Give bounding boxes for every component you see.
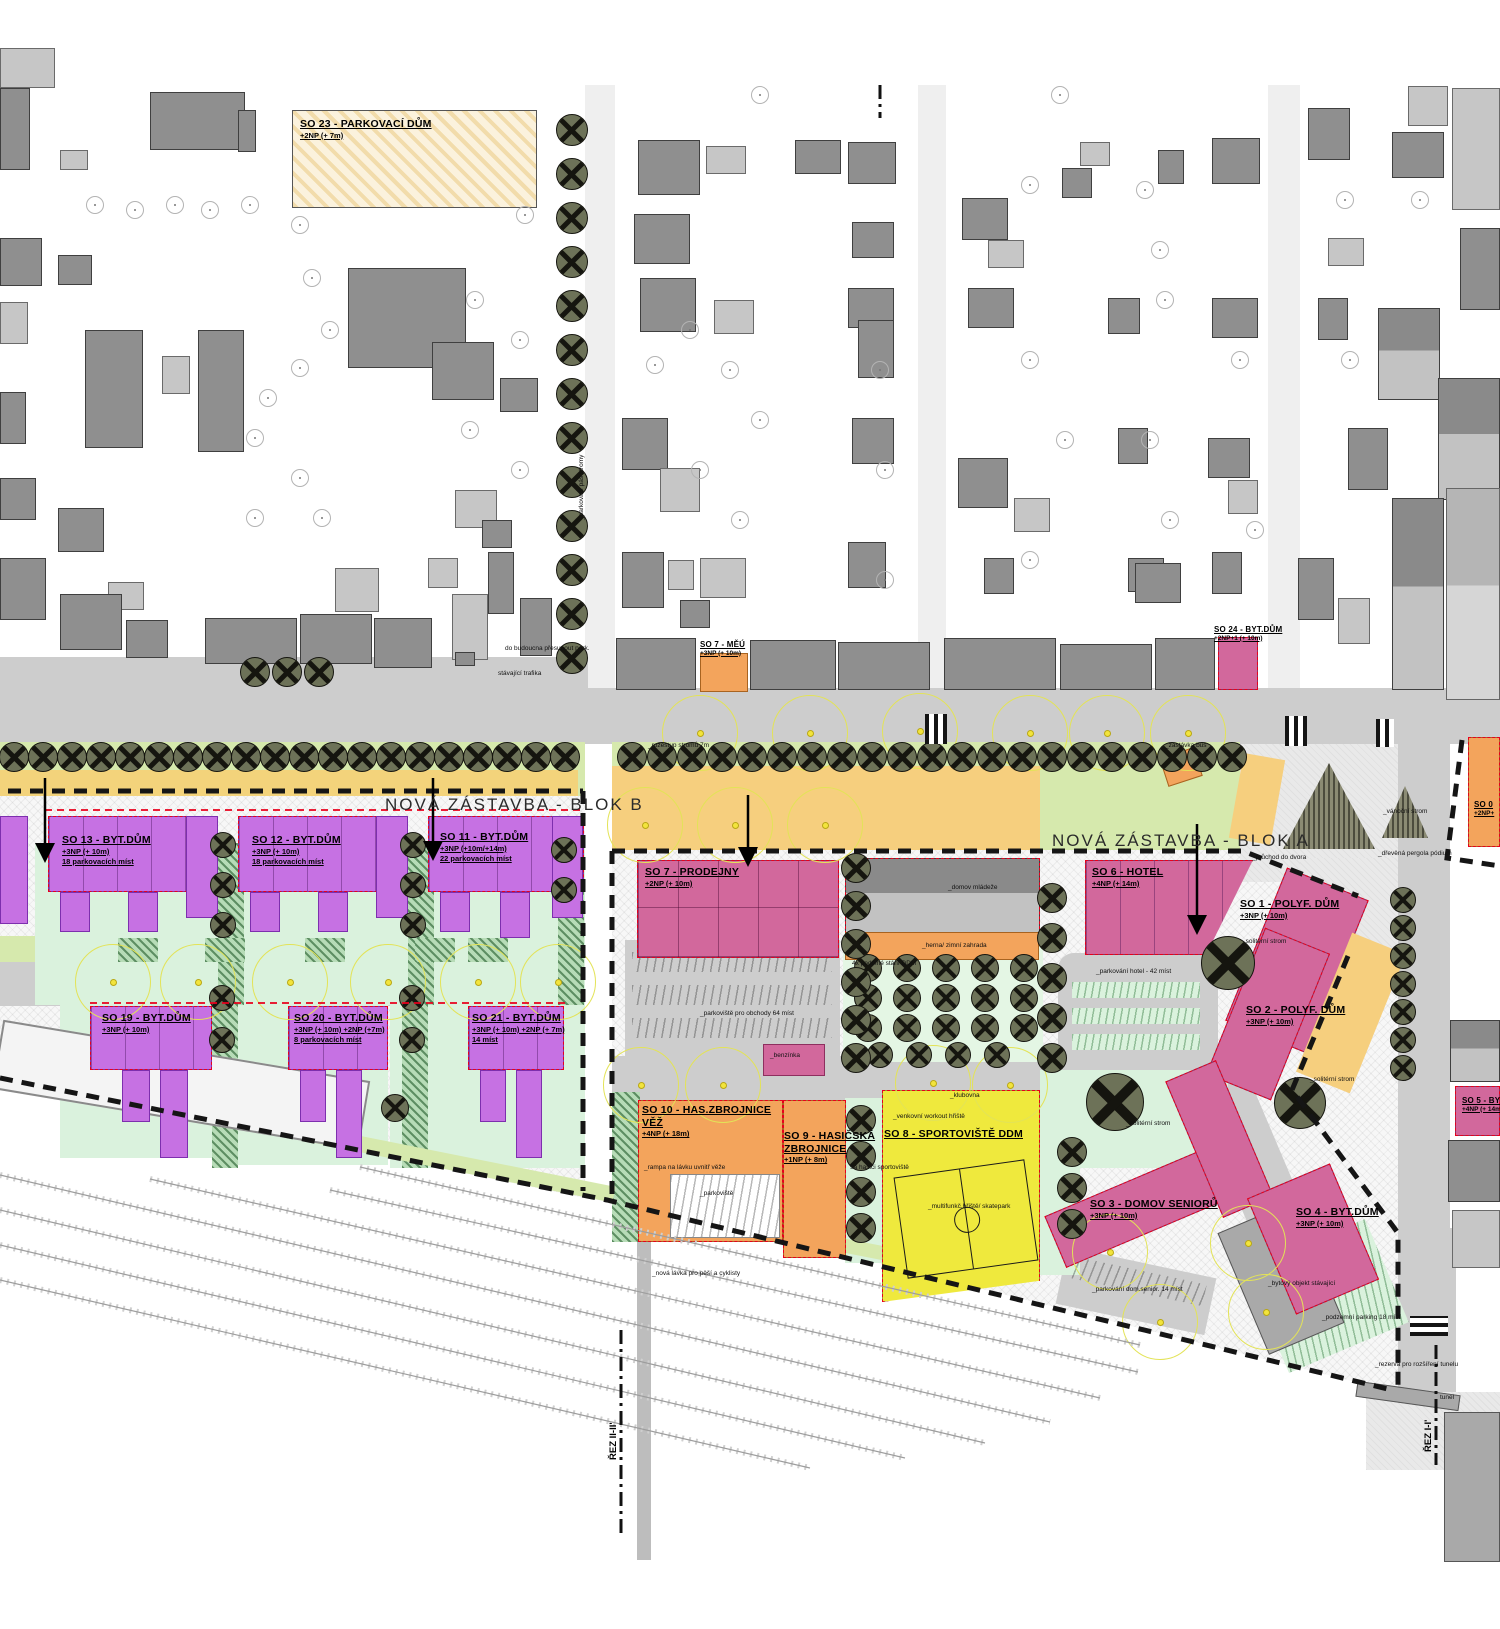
existing-building [700,558,746,598]
tree-icon [405,742,435,772]
crosswalk [925,714,947,744]
stalls-hotel-1 [1072,982,1200,998]
label-so2-title: SO 2 - POLYF. DŮM [1246,1004,1345,1017]
existing-building [958,458,1008,508]
existing-building [714,300,754,334]
stalls-obchody-3 [632,1018,832,1038]
existing-building [1212,298,1258,338]
existing-building [988,240,1024,268]
so13-wing-2 [128,892,158,932]
tree-icon [1067,742,1097,772]
existing-building [634,214,690,264]
tree-icon [381,1094,409,1122]
label-so5-title: SO 5 - BYT.DŮM [1462,1096,1500,1106]
label-so13-sub: +3NP (+ 10m) [62,847,151,857]
so10-courtyard [670,1174,780,1238]
annotation: _dřevěná pergola pódium [1378,850,1452,857]
tree-small-icon [1411,191,1429,209]
bottom-right-building [1444,1412,1500,1562]
existing-building [1460,228,1500,310]
existing-building [638,140,700,195]
block-label: NOVÁ ZÁSTAVBA - BLOK B [385,796,644,813]
existing-building [1338,598,1370,644]
tree-small-icon [466,291,484,309]
existing-building [1392,132,1444,178]
tree-icon [887,742,917,772]
tree-icon [932,954,960,982]
existing-building [1438,378,1500,500]
label-so23-sub: +2NP (+ 7m) [300,131,432,141]
existing-building [428,558,458,588]
existing-building [984,558,1014,594]
existing-building [1228,480,1258,514]
tree-icon [304,657,334,687]
main-street [0,688,1500,744]
so19-wing-1 [122,1070,150,1122]
label-so5-sub: +4NP (+ 14m) [1462,1106,1500,1115]
label-so23-title: SO 23 - PARKOVACÍ DŮM [300,118,432,131]
tree-icon [617,742,647,772]
tree-small-icon [1161,511,1179,529]
tree-small-icon [691,461,709,479]
tree-icon [971,984,999,1012]
annotation: _zastávka bus [1165,742,1207,749]
label-so21-title: SO 21 - BYT.DŮM [472,1012,565,1025]
tree-icon [1097,742,1127,772]
tree-icon [841,1005,871,1035]
so12-wing-1 [250,892,280,932]
tree-small-icon [516,206,534,224]
label-so6: SO 6 - HOTEL+4NP (+ 14m) [1092,866,1163,889]
existing-building [962,198,1008,240]
existing-building [1298,558,1334,620]
tree-icon [1057,1173,1087,1203]
existing-building [1318,298,1348,340]
so20-wing-1 [300,1070,326,1122]
tree-icon [841,853,871,883]
tree-icon [202,742,232,772]
existing-building [1408,86,1448,126]
label-so11: SO 11 - BYT.DŮM+3NP (+10m/+14m)22 parkov… [440,831,528,864]
tree-small-icon [291,469,309,487]
tree-small-icon [246,429,264,447]
existing-building [452,594,488,660]
label-so2-sub: +3NP (+ 10m) [1246,1017,1345,1027]
existing-building [668,560,694,590]
tree-icon [521,742,551,772]
benzinka [763,1044,825,1076]
existing-building [455,652,475,666]
streetlight-circle-icon [1210,1205,1286,1281]
tree-icon [1057,1137,1087,1167]
tree-icon [210,912,236,938]
tree-small-icon [1141,431,1159,449]
label-so9-title: SO 9 - HASIČSKÁ ZBROJNICE [784,1130,876,1155]
label-so20: SO 20 - BYT.DŮM+3NP (+ 10m) +2NP (+7m)8 … [294,1012,385,1045]
label-so12-title: SO 12 - BYT.DŮM [252,834,341,847]
existing-building [1108,298,1140,334]
tree-small-icon [1156,291,1174,309]
tree-icon [115,742,145,772]
tree-icon [1007,742,1037,772]
existing-building [58,508,104,552]
existing-building [1062,168,1092,198]
tree-small-icon [303,269,321,287]
tree-small-icon [1341,351,1359,369]
tree-icon [144,742,174,772]
tree-icon [1390,943,1416,969]
existing-building [622,418,668,470]
so0-building [1468,737,1500,847]
tree-small-icon [86,196,104,214]
tree-small-icon [291,216,309,234]
tree-icon [857,742,887,772]
existing-building [1448,1140,1500,1202]
tree-icon [1390,999,1416,1025]
tree-small-icon [1021,351,1039,369]
existing-building [85,330,143,448]
existing-building [1452,88,1500,210]
annotation: _benzínka [770,1052,800,1059]
label-so21: SO 21 - BYT.DŮM+3NP (+ 10m) +2NP (+ 7m)1… [472,1012,565,1045]
rail-tie-7 [0,1280,810,1468]
existing-building [238,110,256,152]
tree-icon [841,967,871,997]
label-so0-title: SO 0 [1474,800,1494,810]
tree-icon [550,742,580,772]
label-so0-sub: +2NP+ [1474,810,1494,819]
so19-wing-2 [160,1070,188,1158]
so9-hasicska-zbrojnice [783,1100,846,1258]
tree-icon [399,985,425,1011]
crosswalk [1376,719,1394,747]
tree-small-icon [246,509,264,527]
annotation: _multifunkč.hřiště/ skatepark [928,1203,1010,1210]
tree-icon [400,832,426,858]
existing-building [1208,438,1250,478]
annotation: _venkovní workout hřiště [893,1113,965,1120]
annotation: _rampa na lávku uvnitř věže [644,1164,725,1171]
existing-building [0,558,46,620]
block-label: NOVÁ ZÁSTAVBA - BLOK A [1052,832,1310,849]
tree-icon [231,742,261,772]
tree-small-icon [751,411,769,429]
tree-icon [260,742,290,772]
annotation: _parkování dom.senior. 14 míst [1092,1286,1183,1293]
tree-icon [556,554,588,586]
label-so11-sub: +3NP (+10m/+14m) [440,844,528,854]
tree-icon [1217,742,1247,772]
tree-icon [86,742,116,772]
label-so6-sub: +4NP (+ 14m) [1092,879,1163,889]
so12-wing-2 [318,892,348,932]
annotation: _parkování hotel - 42 míst [1096,968,1171,975]
tree-icon [893,1014,921,1042]
tree-small-icon [1151,241,1169,259]
tree-icon [210,832,236,858]
existing-building [616,638,696,690]
tree-small-icon [1336,191,1354,209]
tree-icon [556,598,588,630]
label-so21-sub: 14 míst [472,1035,565,1045]
annotation: _nová lávka pro pěší a cyklisty [652,1270,740,1277]
label-so3-sub: +3NP (+ 10m) [1090,1211,1218,1221]
tree-small-icon [1246,521,1264,539]
tree-small-icon [511,331,529,349]
tree-icon [400,912,426,938]
tree-small-icon [201,201,219,219]
existing-building [1060,644,1152,690]
tree-icon [1390,915,1416,941]
so11-wing-1 [440,892,470,932]
label-so12-sub: +3NP (+ 10m) [252,847,341,857]
label-so19: SO 19 - BYT.DŮM+3NP (+ 10m) [102,1012,191,1035]
tree-icon [893,954,921,982]
label-so1-title: SO 1 - POLYF. DŮM [1240,898,1339,911]
label-so1: SO 1 - POLYF. DŮM+3NP (+ 10m) [1240,898,1339,921]
tree-small-icon [291,359,309,377]
tree-icon [556,158,588,190]
existing-building [500,378,538,412]
so13-wing-3 [186,816,218,918]
tree-icon [556,114,588,146]
parking-strip-yellow [0,770,578,796]
tree-icon [971,954,999,982]
label-so4: SO 4 - BYT.DŮM+3NP (+ 10m) [1296,1206,1379,1229]
tree-icon [551,877,577,903]
annotation: _klubovna [950,1092,980,1099]
label-so10-sub: +4NP (+ 18m) [642,1129,774,1139]
existing-building [848,142,896,184]
street-vertical-3 [1268,85,1300,689]
label-so7-meu: SO 7 - MĚÚ+3NP (+ 10m) [700,640,745,658]
tree-small-icon [1051,86,1069,104]
so7-meu [700,653,748,692]
tree-icon [1037,883,1067,913]
label-so3-title: SO 3 - DOMOV SENIORŮ [1090,1198,1218,1211]
existing-building [1155,638,1215,690]
so20-wing-2 [336,1070,362,1158]
tree-small-icon [721,361,739,379]
tree-icon [209,985,235,1011]
tree-icon [173,742,203,772]
tree-icon [932,984,960,1012]
existing-building [622,552,664,608]
tree-small-icon [871,361,889,379]
tree-icon [971,1014,999,1042]
tree-icon [1390,1055,1416,1081]
existing-building [432,342,494,400]
existing-building [1446,488,1500,700]
tree-small-icon [751,86,769,104]
tree-icon [827,742,857,772]
annotation: _solitérní strom [1242,938,1286,945]
tree-icon [841,929,871,959]
tree-icon [347,742,377,772]
existing-building [300,614,372,664]
existing-building [750,640,836,690]
annotation: _rozestup stromů 7m [648,742,709,749]
so24-byt-dum [1218,637,1258,690]
streetlight-circle-icon [75,944,151,1020]
existing-building [1328,238,1364,266]
tree-icon [1057,1209,1087,1239]
label-so13-sub: 18 parkovacích míst [62,857,151,867]
tree-icon [846,1213,876,1243]
streetlight-circle-icon [520,944,596,1020]
label-so4-sub: +3NP (+ 10m) [1296,1219,1379,1229]
existing-building [852,222,894,258]
tree-icon [376,742,406,772]
label-so21-sub: +3NP (+ 10m) +2NP (+ 7m) [472,1025,565,1035]
annotation: _průchod do dvora [1252,854,1306,861]
annotation: _solitérní strom [1310,1076,1354,1083]
label-so24-title: SO 24 - BYT.DŮM [1214,625,1282,635]
label-so6-title: SO 6 - HOTEL [1092,866,1163,879]
byt-dum-partial [0,816,28,924]
annotation: _solitérní strom [1126,1120,1170,1127]
tree-icon [984,1042,1010,1068]
label-so19-title: SO 19 - BYT.DŮM [102,1012,191,1025]
label-so19-sub: +3NP (+ 10m) [102,1025,191,1035]
tree-icon [1127,742,1157,772]
label-so8: SO 8 - SPORTOVIŠTĚ DDM [884,1128,1023,1141]
tree-icon [0,742,29,772]
tree-icon [841,1043,871,1073]
existing-building [482,520,512,548]
label-so10-title: SO 10 - HAS.ZBROJNICE VĚŽ [642,1104,774,1129]
rail-tie-6 [0,1245,905,1458]
label-so20-sub: +3NP (+ 10m) +2NP (+7m) [294,1025,385,1035]
existing-building [60,150,88,170]
tree-small-icon [1021,176,1039,194]
label-so11-sub: 22 parkovacích míst [440,854,528,864]
label-so20-sub: 8 parkovacích míst [294,1035,385,1045]
tree-icon [28,742,58,772]
tree-small-icon [511,461,529,479]
tree-icon [893,984,921,1012]
label-so12: SO 12 - BYT.DŮM+3NP (+ 10m)18 parkovacíc… [252,834,341,867]
tree-icon [556,202,588,234]
label-so7-meu-title: SO 7 - MĚÚ [700,640,745,650]
tree-small-icon [646,356,664,374]
stalls-obchody-2 [632,985,832,1005]
annotation: tunel [1440,1394,1454,1401]
annotation: _podzemní parking 18 míst [1322,1314,1400,1321]
tree-icon [1037,742,1067,772]
label-so24: SO 24 - BYT.DŮM+2NP+1 (+ 10m) [1214,625,1282,643]
label-so11-title: SO 11 - BYT.DŮM [440,831,528,844]
existing-building [58,255,92,285]
label-so20-title: SO 20 - BYT.DŮM [294,1012,385,1025]
so13-wing-1 [60,892,90,932]
tree-icon [1037,923,1067,953]
existing-building [1392,498,1444,690]
tree-icon [1037,1043,1067,1073]
street-vertical-1 [585,85,615,689]
existing-building [488,552,514,614]
annotation: _bytový objekt stávající [1268,1280,1335,1287]
rail-7 [0,1280,810,1468]
tree-icon [1037,1003,1067,1033]
existing-building [1212,138,1260,184]
tree-icon [917,742,947,772]
tree-icon [556,334,588,366]
tree-small-icon [166,196,184,214]
crosswalk [1285,716,1307,746]
verge-hatch-5 [402,1000,428,1168]
annotation: _parkoviště pro obchody 64 míst [700,1010,794,1017]
tree-icon [977,742,1007,772]
tree-icon [209,1027,235,1053]
annotation: _rezerva pro rozšíření tunelu [1375,1361,1458,1368]
label-so24-sub: +2NP+1 (+ 10m) [1214,635,1282,644]
existing-building [0,478,36,520]
section-label: ŘEZ II-II' [609,1422,619,1460]
tree-icon [906,1042,932,1068]
existing-building [1080,142,1110,166]
stalls-hotel-3 [1072,1034,1200,1050]
tree-icon [57,742,87,772]
existing-building [162,356,190,394]
existing-building [126,620,168,658]
label-so0: SO 0+2NP+ [1474,800,1494,818]
existing-building [1135,563,1181,603]
annotation: 4x podélné stání DDM [852,960,916,967]
tree-icon [463,742,493,772]
street-vertical-2 [918,85,946,689]
label-so9: SO 9 - HASIČSKÁ ZBROJNICE+1NP (+ 8m) [784,1130,876,1165]
tree-icon [1390,1027,1416,1053]
tree-icon [272,657,302,687]
label-so3: SO 3 - DOMOV SENIORŮ+3NP (+ 10m) [1090,1198,1218,1221]
label-so8-title: SO 8 - SPORTOVIŠTĚ DDM [884,1128,1023,1141]
footbridge [637,1242,651,1560]
tree-icon [1390,971,1416,997]
tree-icon [947,742,977,772]
tree-icon [867,1042,893,1068]
existing-building [706,146,746,174]
tree-small-icon [1056,431,1074,449]
label-so2: SO 2 - POLYF. DŮM+3NP (+ 10m) [1246,1004,1345,1027]
label-so23: SO 23 - PARKOVACÍ DŮM+2NP (+ 7m) [300,118,432,141]
domov-mladeze [845,858,1040,934]
existing-building [374,618,432,668]
tree-icon [318,742,348,772]
tree-icon [400,872,426,898]
annotation: _vánoční strom [1383,808,1427,815]
existing-building [60,594,122,650]
streetlight-circle-icon [252,944,328,1020]
annotation: _parkoviště [700,1190,733,1197]
tree-small-icon [1136,181,1154,199]
tree-icon [1274,1077,1326,1129]
tree-small-icon [876,571,894,589]
tree-small-icon [1231,351,1249,369]
tree-icon [1037,963,1067,993]
label-so7-prodejny: SO 7 - PRODEJNY+2NP (+ 10m) [645,866,739,889]
so21-wing-2 [516,1070,542,1158]
tree-small-icon [259,389,277,407]
tree-icon [737,742,767,772]
existing-building [1452,1210,1500,1268]
existing-building [1348,428,1388,490]
existing-building [0,392,26,444]
tree-icon [399,1027,425,1053]
existing-building [0,88,30,170]
annotation: _herna/ zimní zahrada [922,942,987,949]
crosswalk [1410,1316,1448,1336]
